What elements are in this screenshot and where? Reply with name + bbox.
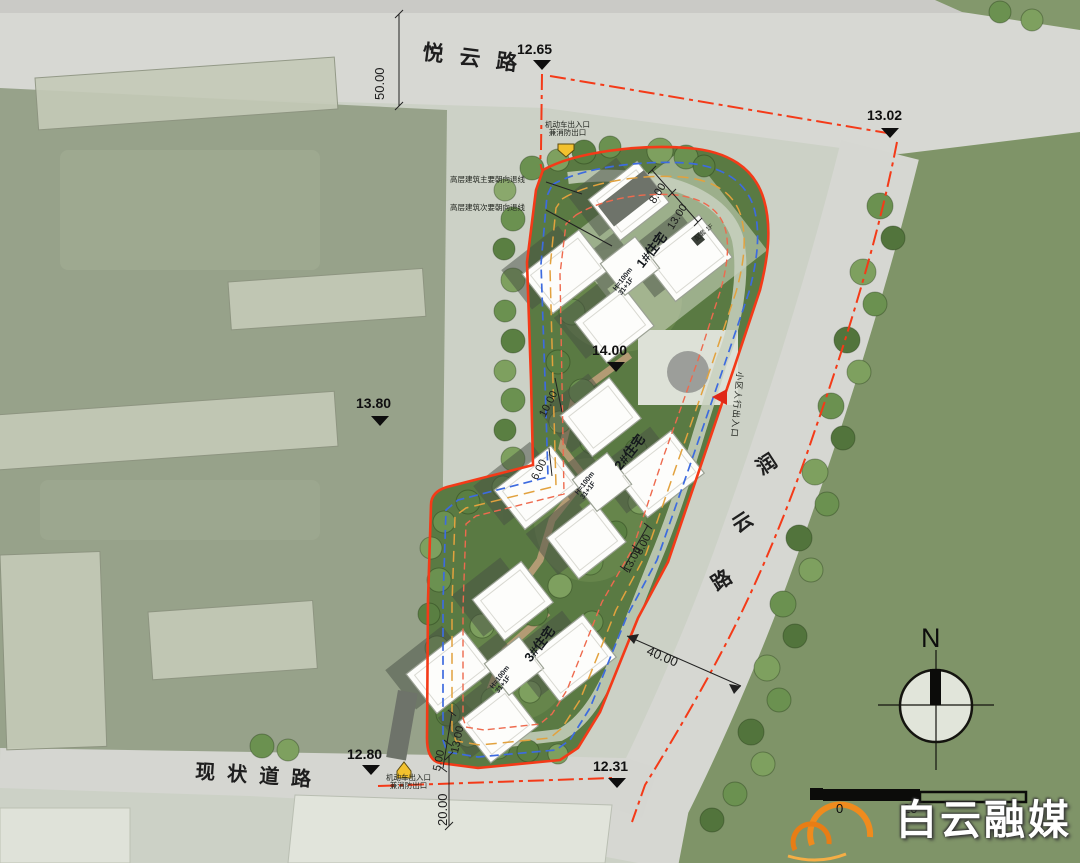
dim-north-offset: 50.00 (373, 67, 387, 100)
vehicle-entrance-top-line2: 兼消防出口 (545, 129, 590, 137)
elevation-west: 13.80 (356, 396, 391, 411)
setback-secondary-label: 高层建筑次要朝向退线 (450, 204, 525, 212)
site-plan: 悦云路 现状道路 润 云 路 12.65 13.02 13.80 14.00 1… (0, 0, 1080, 863)
dim-south-offset: 20.00 (436, 793, 450, 826)
elevation-center: 14.00 (592, 343, 627, 358)
elevation-bottom-right: 12.31 (593, 759, 628, 774)
setback-main-label: 高层建筑主要朝向退线 (450, 176, 525, 184)
vehicle-entrance-label-top: 机动车出入口 兼消防出口 (545, 121, 590, 137)
elevation-top-right: 13.02 (867, 108, 902, 123)
elevation-top: 12.65 (517, 42, 552, 57)
north-label: N (921, 624, 941, 652)
scale-zero: 0 (836, 802, 843, 816)
watermark-logo-text: 白云融媒 (896, 799, 1072, 842)
elevation-bottom-left: 12.80 (347, 747, 382, 762)
vehicle-entrance-label-bottom: 机动车出入口 兼消防出口 (386, 774, 431, 790)
vehicle-entrance-bottom-line2: 兼消防出口 (386, 782, 431, 790)
site-plan-graphics (0, 0, 1080, 863)
road-bottom (0, 762, 650, 793)
